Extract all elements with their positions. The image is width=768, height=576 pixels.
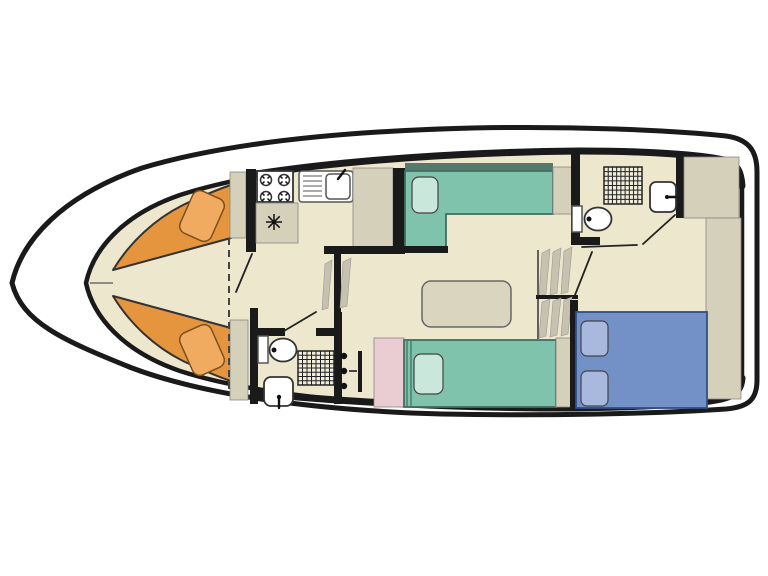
fridge (256, 203, 298, 243)
bow-shelf-bottom (230, 320, 248, 400)
toilet-tank (572, 206, 582, 232)
aft-side-locker (706, 218, 741, 399)
bathroom-mid-left-wall (250, 308, 258, 404)
galley-aft-wall (393, 168, 405, 254)
saloon-table (422, 281, 511, 327)
wardrobe-pink (374, 338, 404, 407)
berth-side-locker (556, 338, 572, 407)
toilet-flush-dot (272, 348, 277, 353)
bathroom-aft-bottom-stub (571, 237, 600, 245)
galley-fwd-wall (246, 169, 256, 252)
bow-shelf-top (230, 172, 246, 238)
fridge-asterisk-icon (266, 214, 282, 230)
toilet-tank (258, 336, 268, 363)
bathroom-mid-right-wall (334, 312, 342, 404)
berth-side-locker (553, 167, 572, 214)
shower-grid (604, 167, 642, 204)
berth-pillow (581, 321, 608, 356)
berth-headrail (405, 163, 553, 171)
berth-pillow (412, 177, 438, 213)
berth-pillow (581, 371, 608, 406)
shower-grid (298, 351, 334, 385)
aft-wardrobe (684, 157, 739, 218)
toilet-flush-dot (587, 217, 592, 222)
boat-floorplan-canvas (0, 0, 768, 576)
saloon-single-berth-bottom (404, 338, 572, 407)
steps-top-wall (324, 246, 405, 254)
galley-counter-column (353, 168, 393, 251)
floorplan-svg (0, 0, 768, 576)
bathroom-aft-right-wall (676, 155, 684, 218)
berth-foot-wall (402, 246, 448, 253)
bathroom-mid-top-wall-left (258, 328, 285, 336)
berth-pillow (414, 354, 443, 394)
